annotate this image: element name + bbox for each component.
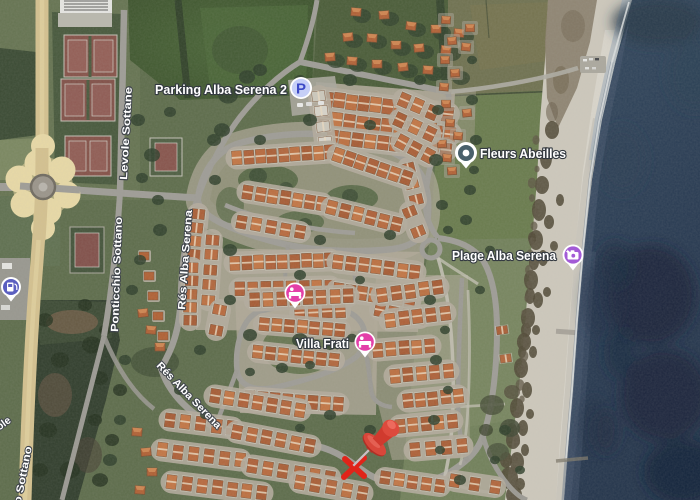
svg-text:Villa Frati: Villa Frati — [296, 337, 349, 351]
svg-text:P: P — [296, 81, 306, 98]
svg-text:Parking Alba Serena 2: Parking Alba Serena 2 — [155, 83, 287, 97]
svg-text:Plage Alba Serena: Plage Alba Serena — [452, 249, 557, 263]
svg-text:Fleurs Abeilles: Fleurs Abeilles — [480, 147, 566, 161]
